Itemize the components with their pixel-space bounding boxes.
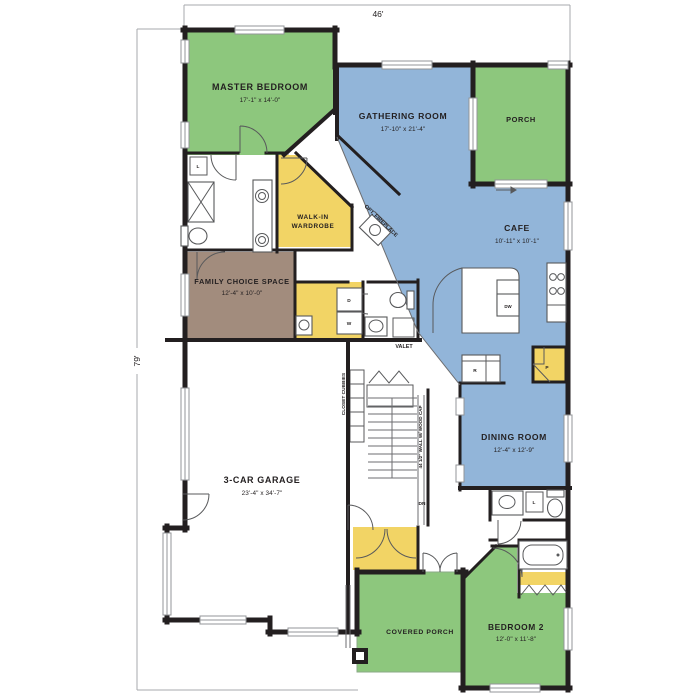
label-dishwasher: DW [504, 304, 512, 309]
cubby-dividers [350, 384, 364, 426]
mud-bench [367, 385, 413, 407]
vanity-master [253, 180, 272, 252]
label-wardrobe-line2: WARDROBE [292, 223, 335, 230]
label-garage: 3-CAR GARAGE [224, 475, 301, 485]
door-arc-garage-mud [348, 505, 373, 530]
door-arc-front-left [423, 553, 440, 572]
window [288, 628, 338, 636]
stove [547, 263, 566, 322]
label-closet-cubbies: CLOSET CUBBIES [341, 372, 347, 415]
label-valet: VALET [395, 344, 413, 350]
valet-desk [393, 318, 414, 337]
label-refrigerator: R [473, 368, 477, 374]
sink-bath2 [492, 491, 523, 515]
cased-opening [456, 465, 464, 482]
window [469, 98, 477, 150]
refrigerator [462, 355, 500, 382]
door-arc-front-right [440, 553, 457, 572]
label-bedroom-2-size: 12'-0" x 11'-8" [496, 636, 536, 643]
label-garage-size: 23'-4" x 34'-7" [242, 490, 283, 497]
label-cafe-size: 10'-11" x 10'-1" [495, 238, 539, 245]
window [382, 61, 432, 69]
window [200, 616, 246, 624]
label-master-bedroom-size: 17'-1" x 14'-0" [240, 97, 281, 104]
label-gathering-room: GATHERING ROOM [359, 111, 447, 121]
bedroom2-closet-area [519, 572, 566, 585]
window [181, 388, 189, 480]
dimension-height-label: 79' [132, 355, 142, 366]
window [163, 533, 171, 615]
window [181, 40, 189, 63]
window [564, 202, 572, 250]
toilet-master [181, 226, 207, 246]
cased-opening [456, 398, 464, 415]
label-master-bedroom: MASTER BEDROOM [212, 82, 308, 92]
label-gathering-room-size: 17'-10" x 21'-4" [381, 126, 425, 133]
label-linen-bath2: L [533, 500, 536, 506]
hanging-rod-mud [369, 371, 409, 383]
label-dryer: D [347, 298, 351, 304]
label-washer: W [347, 321, 352, 327]
label-linen-master: L [197, 164, 200, 170]
label-porch: PORCH [506, 115, 536, 124]
bathtub [519, 541, 567, 569]
room-porch-area [475, 65, 568, 184]
room-covered-porch-area [357, 572, 463, 672]
label-wardrobe-line1: WALK-IN [297, 214, 329, 221]
laundry-sink [296, 316, 312, 335]
window [495, 180, 547, 188]
label-cafe: CAFE [504, 223, 530, 233]
room-fills [187, 32, 568, 688]
label-bedroom-2: BEDROOM 2 [488, 622, 544, 632]
label-covered-porch: COVERED PORCH [386, 629, 454, 636]
sink-powder [365, 317, 387, 336]
window [548, 61, 568, 69]
label-family-choice-size: 12'-4" x 10'-0" [222, 290, 263, 297]
closet-cubbies-area [350, 370, 364, 442]
label-wall-cap: 44 1/2" WALL W/ WOOD CAP [418, 405, 423, 468]
label-family-choice: FAMILY CHOICE SPACE [194, 277, 289, 286]
window [564, 608, 572, 650]
window [181, 122, 189, 148]
floor-plan-canvas: 46' 79' [0, 0, 700, 700]
window [564, 415, 572, 462]
toilet-bath2 [547, 490, 564, 517]
door-arc-master-bath [211, 155, 236, 180]
room-master-bedroom-area [187, 32, 333, 155]
entry-closet-area [353, 527, 418, 570]
stairs [368, 395, 424, 525]
label-dining-room-size: 12'-4" x 12'-9" [494, 447, 535, 454]
label-down: DN [419, 501, 426, 507]
shower [188, 182, 214, 222]
dimension-width-label: 46' [372, 9, 383, 19]
label-dining-room: DINING ROOM [481, 432, 547, 442]
window [181, 274, 189, 316]
toilet-powder [390, 291, 414, 309]
window [235, 26, 284, 34]
window [490, 684, 540, 692]
